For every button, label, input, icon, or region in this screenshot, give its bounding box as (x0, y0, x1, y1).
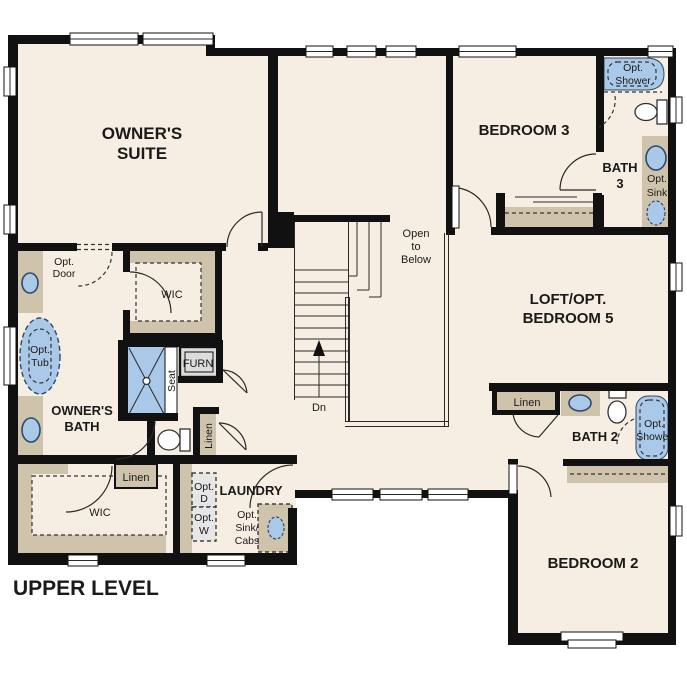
sink-icon (646, 146, 666, 170)
wall-west (8, 35, 18, 565)
label-linen: Linen (203, 423, 215, 449)
sink-icon (22, 273, 38, 293)
label-furnace: FURN (183, 358, 214, 370)
floor-plan-drawing: OWNER'S SUITE BEDROOM 3 LOFT/OPT. BEDROO… (0, 0, 687, 687)
shower-drain-icon (143, 378, 150, 385)
wall-laundry-north (173, 455, 297, 464)
toilet-icon (158, 430, 180, 450)
page-title: UPPER LEVEL (13, 577, 159, 600)
label-opt-sink-cabs: Cabs (235, 535, 260, 547)
door-opening (509, 464, 517, 494)
label-linen: Linen (514, 397, 541, 409)
label-open-to-below: to (411, 241, 420, 253)
wall-bedroom2-closet (563, 459, 676, 466)
room-label-bedroom3: BEDROOM 3 (479, 122, 570, 139)
wall-bath3-west (596, 56, 604, 152)
label-seat: Seat (166, 370, 178, 392)
label-opt-door: Door (53, 268, 76, 280)
bedroom2-closet (567, 466, 672, 483)
label-opt-sink-cabs: Opt. (237, 509, 257, 521)
room-label-bath3: 3 (616, 176, 623, 191)
room-label-wic: WIC (89, 507, 110, 519)
room-label-wic: WIC (161, 289, 182, 301)
wic-shelf (18, 535, 166, 553)
wall-loft-north (491, 227, 676, 235)
wall-bath2-north (489, 383, 676, 391)
label-opt-dryer: Opt. (194, 481, 214, 493)
room-label-loft: LOFT/OPT. (530, 291, 607, 308)
label-opt-washer: Opt. (194, 512, 214, 524)
room-label-owners-suite: SUITE (117, 144, 167, 163)
toilet-icon (608, 401, 626, 423)
wic-shelf (130, 321, 215, 333)
wic-shelf (18, 464, 68, 474)
optional-sink-icon (268, 517, 284, 539)
wall-shower (118, 340, 128, 417)
wall-wic (215, 251, 222, 340)
room-label-bath3: BATH (602, 160, 637, 175)
room-label-owners-suite: OWNER'S (102, 124, 183, 143)
wall-wic-north (14, 455, 180, 464)
label-opt-dryer: D (200, 493, 208, 505)
wall-north-east (210, 48, 676, 56)
wall-stair-head (268, 212, 294, 248)
label-opt-shower: Shower (636, 431, 672, 443)
room-label-owners-bath: BATH (64, 419, 99, 434)
toilet-tank-icon (180, 429, 190, 451)
label-opt-sink-cabs: Sink/ (235, 522, 258, 534)
room-label-bedroom2: BEDROOM 2 (548, 555, 639, 572)
sink-icon (22, 418, 40, 442)
label-opt-tub: Opt. (30, 344, 50, 356)
label-opt-shower: Shower (615, 75, 651, 87)
label-opt-sink: Sink (647, 187, 668, 199)
wall-wic-south (123, 333, 222, 340)
wall-furnace (216, 340, 223, 380)
label-opt-tub: Tub (31, 357, 49, 369)
label-open-to-below: Below (401, 254, 431, 266)
wall-bedroom2-west (508, 494, 518, 645)
wic-shelf (201, 251, 215, 333)
wall-suite-east (268, 48, 278, 218)
wall-bedroom2-west (508, 459, 518, 464)
toilet-tank-icon (657, 100, 667, 124)
wall-bath3-west (596, 195, 604, 235)
room-label-bath2: BATH 2 (572, 429, 618, 444)
wall-stair-top (292, 215, 390, 222)
label-opt-shower: Opt. (623, 62, 643, 74)
door-leaf (452, 186, 459, 228)
floor-plan-page: OWNER'S SUITE BEDROOM 3 LOFT/OPT. BEDROO… (0, 0, 687, 687)
wall-east (668, 48, 676, 645)
label-opt-washer: W (199, 525, 209, 537)
laundry-cabinet (180, 464, 192, 553)
label-stairs-down: Dn (312, 402, 326, 414)
wall-suite-south (18, 243, 77, 251)
label-opt-shower: Opt. (644, 418, 664, 430)
wall-linen (193, 407, 200, 455)
optional-sink-icon (647, 201, 665, 225)
room-label-loft: BEDROOM 5 (523, 310, 614, 327)
closet-shelf (503, 207, 595, 227)
label-linen: Linen (123, 472, 150, 484)
wall-closet-end (496, 193, 505, 229)
label-opt-door: Opt. (54, 256, 74, 268)
toilet-icon (635, 104, 657, 121)
wall-laundry-west (173, 455, 180, 565)
wall-wic (123, 251, 130, 272)
room-label-laundry: LAUNDRY (219, 483, 282, 498)
room-label-owners-bath: OWNER'S (51, 403, 113, 418)
label-open-to-below: Open (403, 228, 430, 240)
wall-southwest-south (8, 553, 297, 565)
wall-suite-south (112, 243, 226, 251)
wall-suite-south (258, 243, 268, 251)
wall-bath (118, 340, 223, 347)
sink-icon (569, 395, 591, 411)
label-opt-sink: Opt. (647, 173, 667, 185)
wall-furnace-south (178, 376, 223, 383)
